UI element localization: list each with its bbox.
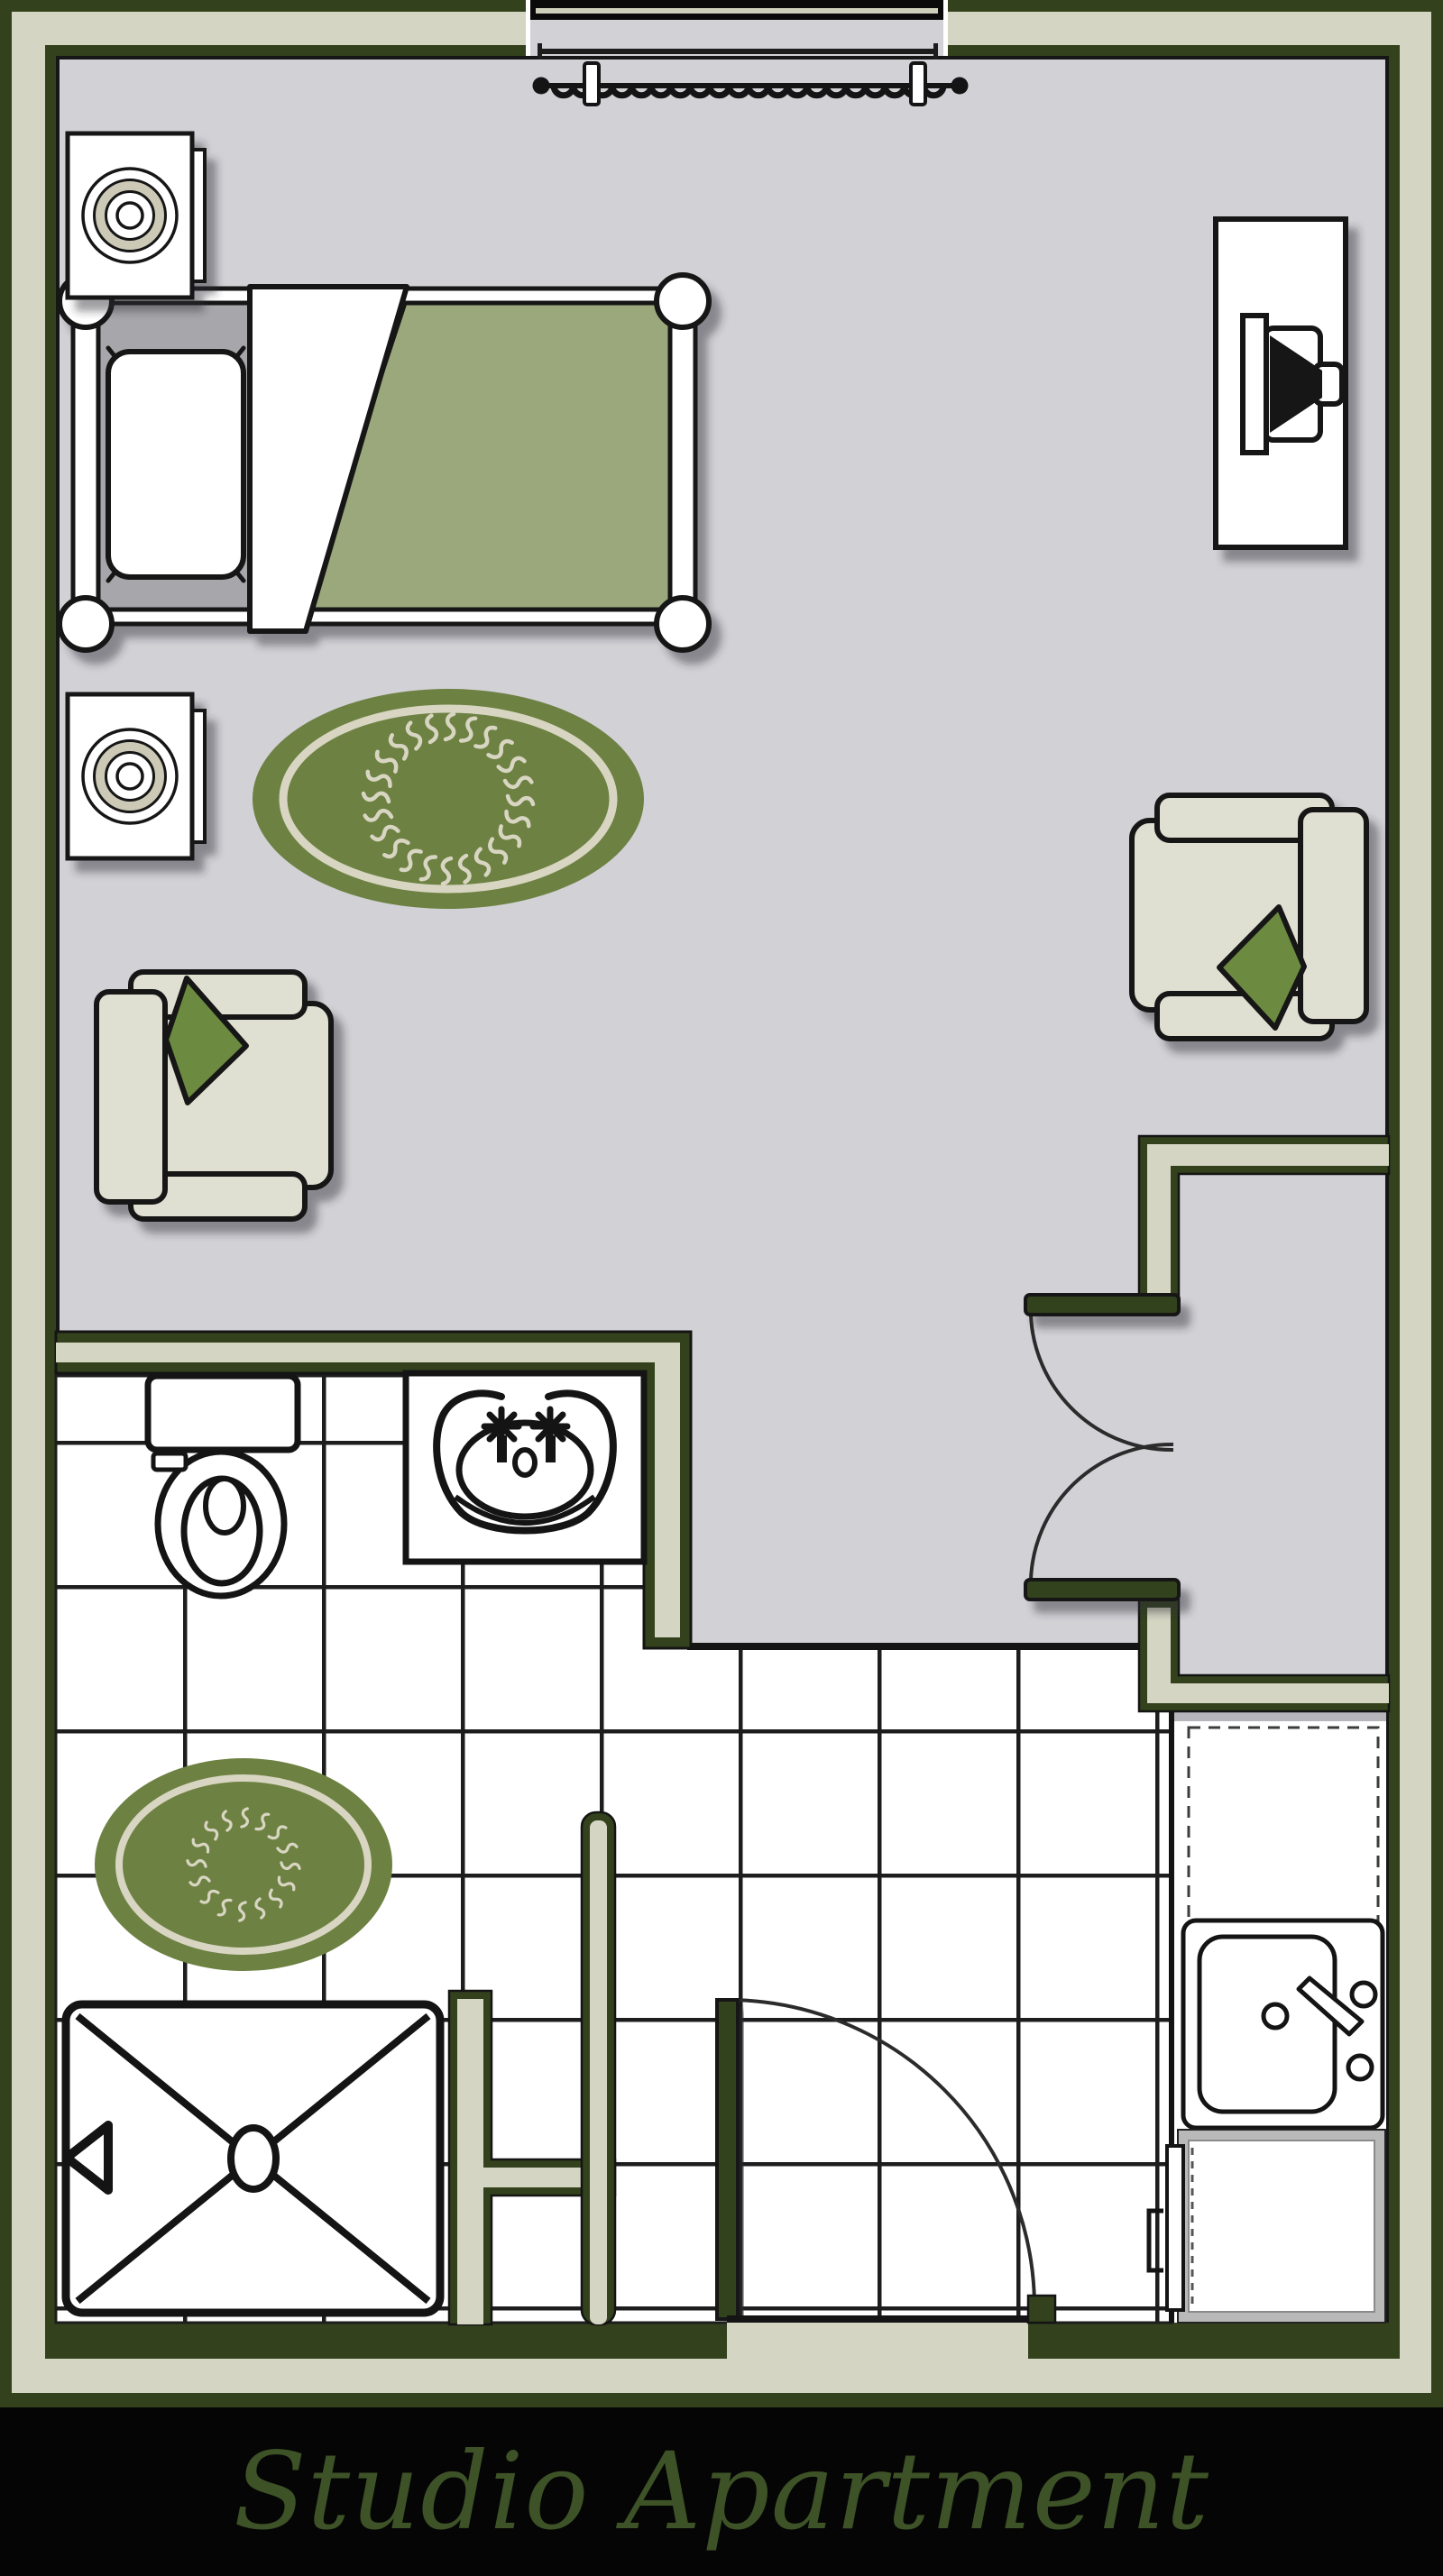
vanity-sink [406,1373,644,1562]
oven-door [1167,2146,1183,2310]
floor-plan: Studio Apartment [0,0,1443,2576]
drain [1264,2004,1287,2028]
door-leaf [717,2000,738,2319]
page-title: Studio Apartment [0,2406,1443,2576]
faucet-knob [1348,2056,1372,2079]
drain [515,1450,535,1475]
curtain-bracket-right [911,63,925,105]
curtain-finial-right [951,78,969,95]
bed-post [60,598,112,650]
kitchen-sink [1183,1921,1383,2128]
rug-large [253,689,644,909]
armchair-right [1132,795,1366,1039]
nightstand-speaker-bottom [68,694,205,858]
door-leaf [1025,1295,1179,1315]
shower [66,2004,440,2313]
rug-small [95,1758,392,1971]
toilet-tank [148,1376,298,1450]
refrigerator [1189,1728,1378,1921]
door-leaf [1025,1580,1179,1600]
faucet-knob [1352,1983,1375,2006]
bed-post [657,598,709,650]
nightstand-speaker-top [68,133,205,298]
toilet [148,1376,298,1596]
curtain-bracket-left [584,63,599,105]
door-threshold [727,2315,1028,2323]
curtain-scallops [554,86,943,96]
tv-dresser [1216,219,1346,547]
wall-end-cap [1028,2296,1055,2323]
stove [1149,2130,1385,2323]
bed [60,275,709,650]
floor-plan-drawing [0,0,1443,2576]
bed-post [657,275,709,327]
window [526,0,948,60]
window-sill-line [538,49,938,54]
curtain-finial-left [533,78,550,95]
shower-drain [231,2128,276,2189]
bed-pillow [108,352,244,577]
armchair-left [97,972,331,1219]
carpet-tile-threshold [687,1643,1139,1650]
headboard [73,314,98,611]
flush-handle [153,1453,186,1470]
footboard [670,314,695,611]
